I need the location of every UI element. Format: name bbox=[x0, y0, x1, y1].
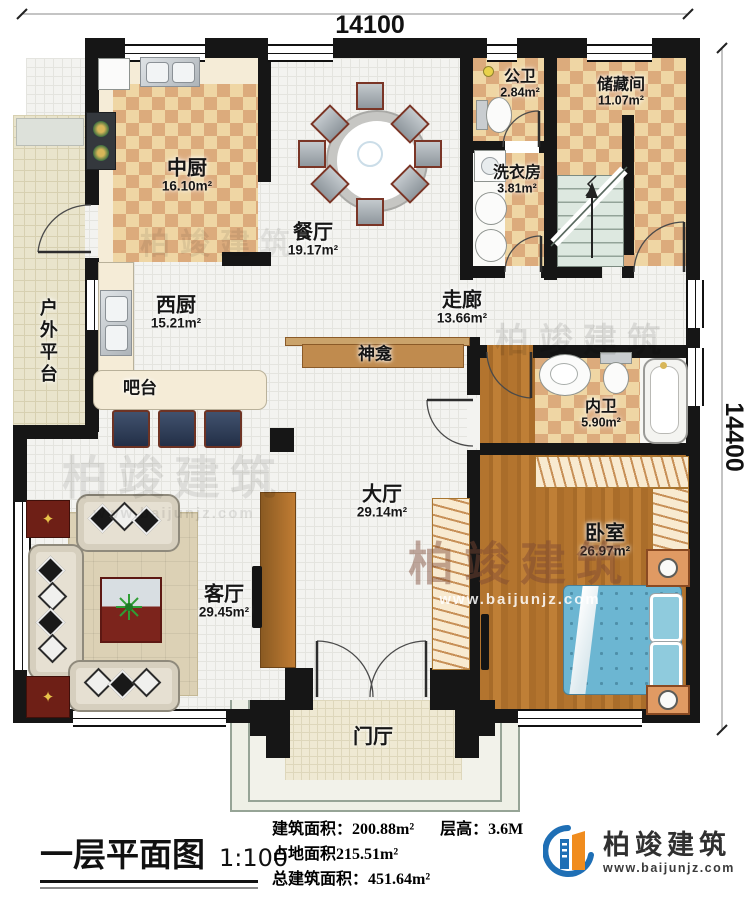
sink-bowl bbox=[105, 296, 128, 322]
bar-stool bbox=[158, 410, 196, 448]
room-label-corridor: 走廊 13.66m² bbox=[437, 290, 487, 327]
dining-chair bbox=[414, 140, 442, 168]
window-storage-top bbox=[587, 44, 652, 62]
room-label-entry: 门厅 bbox=[353, 726, 393, 748]
room-label-hall: 大厅 29.14m² bbox=[357, 484, 407, 521]
wall-bath-south bbox=[480, 443, 687, 455]
title-block: 一层平面图 1:100 bbox=[40, 828, 288, 889]
wall-corridor-top bbox=[622, 266, 634, 278]
porch-pillar-right bbox=[455, 700, 495, 736]
sink-basin bbox=[550, 363, 578, 385]
window-bath-top bbox=[487, 44, 517, 62]
bed-pillow bbox=[650, 642, 682, 690]
company-logo: 柏竣建筑 www.baijunjz.com bbox=[543, 824, 735, 882]
bathtub bbox=[643, 358, 688, 444]
bath-light-fixture bbox=[483, 66, 494, 77]
room-label-shrine: 神龛 bbox=[358, 346, 392, 365]
info-line-2: 占地面积215.51m² bbox=[272, 842, 523, 867]
bathtub-faucet bbox=[660, 362, 667, 369]
logo-text: 柏竣建筑 www.baijunjz.com bbox=[603, 831, 735, 875]
nightstand-lamp bbox=[658, 558, 678, 578]
wardrobe-top bbox=[535, 456, 689, 488]
bed-pillow bbox=[650, 594, 682, 642]
bar-stool bbox=[204, 410, 242, 448]
nightstand bbox=[646, 685, 690, 715]
lamp-side-table: ✦ bbox=[26, 676, 70, 718]
porch-pillar-right bbox=[455, 736, 479, 758]
nightstand bbox=[646, 549, 690, 587]
wall-left-upper bbox=[85, 258, 99, 280]
toilet-public bbox=[486, 97, 512, 133]
toilet-ensuite bbox=[603, 362, 629, 394]
stove-burner bbox=[93, 145, 109, 161]
living-room-tv bbox=[252, 566, 262, 628]
logo-building-icon bbox=[543, 824, 595, 882]
info-line-1: 建筑面积：200.88m² 层高：3.6M bbox=[272, 817, 523, 842]
kitchen-sink bbox=[140, 57, 200, 87]
wall-pier bbox=[333, 38, 487, 58]
logo-company-name: 柏竣建筑 bbox=[603, 831, 735, 861]
porch-pillar-left bbox=[266, 736, 290, 758]
room-label-public-bath: 公卫 2.84m² bbox=[500, 68, 540, 99]
wall-living-west bbox=[13, 425, 27, 502]
wall-kitchen-stub bbox=[222, 252, 271, 266]
dining-chair bbox=[356, 82, 384, 110]
floor-plan: ✦ ✦ bbox=[0, 0, 750, 897]
wall-laundry-stairs bbox=[544, 58, 557, 280]
laundry-basin bbox=[475, 229, 507, 262]
room-label-dining: 餐厅 19.17m² bbox=[288, 222, 338, 259]
title-underline bbox=[40, 880, 258, 883]
door-gap-public-bath bbox=[505, 141, 539, 153]
bar-stool bbox=[112, 410, 150, 448]
plan-title: 一层平面图 bbox=[40, 828, 205, 876]
room-label-bedroom: 卧室 26.97m² bbox=[580, 523, 630, 560]
bathtub-basin bbox=[650, 366, 679, 434]
hall-closet bbox=[432, 498, 470, 670]
bar-counter bbox=[93, 370, 267, 410]
window-bedroom-bottom bbox=[518, 709, 642, 727]
wall-kitchen-dining bbox=[258, 58, 271, 182]
sink-bowl bbox=[105, 325, 128, 351]
wall-corridor-top bbox=[541, 266, 602, 278]
area-info: 建筑面积：200.88m² 层高：3.6M 占地面积215.51m² 总建筑面积… bbox=[272, 817, 523, 892]
stove-burner bbox=[93, 121, 109, 137]
room-label-storage: 储藏间 11.07m² bbox=[597, 76, 645, 107]
wall-pier bbox=[85, 38, 125, 58]
wall-dining-bath bbox=[460, 58, 473, 280]
nightstand-lamp bbox=[658, 690, 678, 710]
platform-bench bbox=[16, 118, 84, 146]
window-corridor-right bbox=[686, 280, 704, 328]
kitchen-stove bbox=[86, 112, 116, 170]
bedroom-tv bbox=[481, 614, 489, 670]
room-label-living: 客厅 29.45m² bbox=[199, 584, 249, 621]
window-dining-top bbox=[268, 44, 333, 62]
dining-chair bbox=[356, 198, 384, 226]
tv-wall-panel bbox=[260, 492, 296, 668]
dining-table-center bbox=[357, 141, 383, 167]
title-underline-2 bbox=[40, 887, 258, 889]
kitchen-appliance bbox=[98, 58, 130, 90]
room-label-outdoor-platform: 户外平台 bbox=[37, 298, 57, 386]
westkitchen-sink bbox=[100, 290, 132, 356]
pillar-hall-junction bbox=[270, 428, 294, 452]
room-label-west-kitchen: 西厨 15.21m² bbox=[151, 295, 201, 332]
room-label-ensuite: 内卫 5.90m² bbox=[581, 398, 621, 429]
bed-sheet-fold bbox=[569, 586, 598, 694]
sink-bowl bbox=[146, 62, 169, 83]
staircase bbox=[557, 175, 624, 267]
room-label-laundry: 洗衣房 3.81m² bbox=[493, 164, 541, 195]
ensuite-sink bbox=[539, 354, 591, 396]
wall-pier bbox=[205, 38, 268, 58]
laundry-basin bbox=[475, 192, 507, 225]
logo-website: www.baijunjz.com bbox=[603, 861, 735, 875]
dimension-right: 14400 bbox=[692, 395, 750, 479]
dining-chair bbox=[298, 140, 326, 168]
wall-corridor-top bbox=[460, 266, 505, 278]
coffee-table bbox=[100, 577, 162, 643]
room-label-chinese-kitchen: 中厨 16.10m² bbox=[162, 158, 212, 195]
wall-pier bbox=[517, 38, 587, 58]
room-label-bar: 吧台 bbox=[123, 380, 157, 399]
dimension-top: 14100 bbox=[300, 11, 440, 40]
lamp-side-table: ✦ bbox=[26, 500, 70, 538]
info-line-3: 总建筑面积：451.64m² bbox=[272, 867, 523, 892]
porch-pillar-left bbox=[250, 700, 290, 736]
sink-bowl bbox=[172, 62, 195, 83]
